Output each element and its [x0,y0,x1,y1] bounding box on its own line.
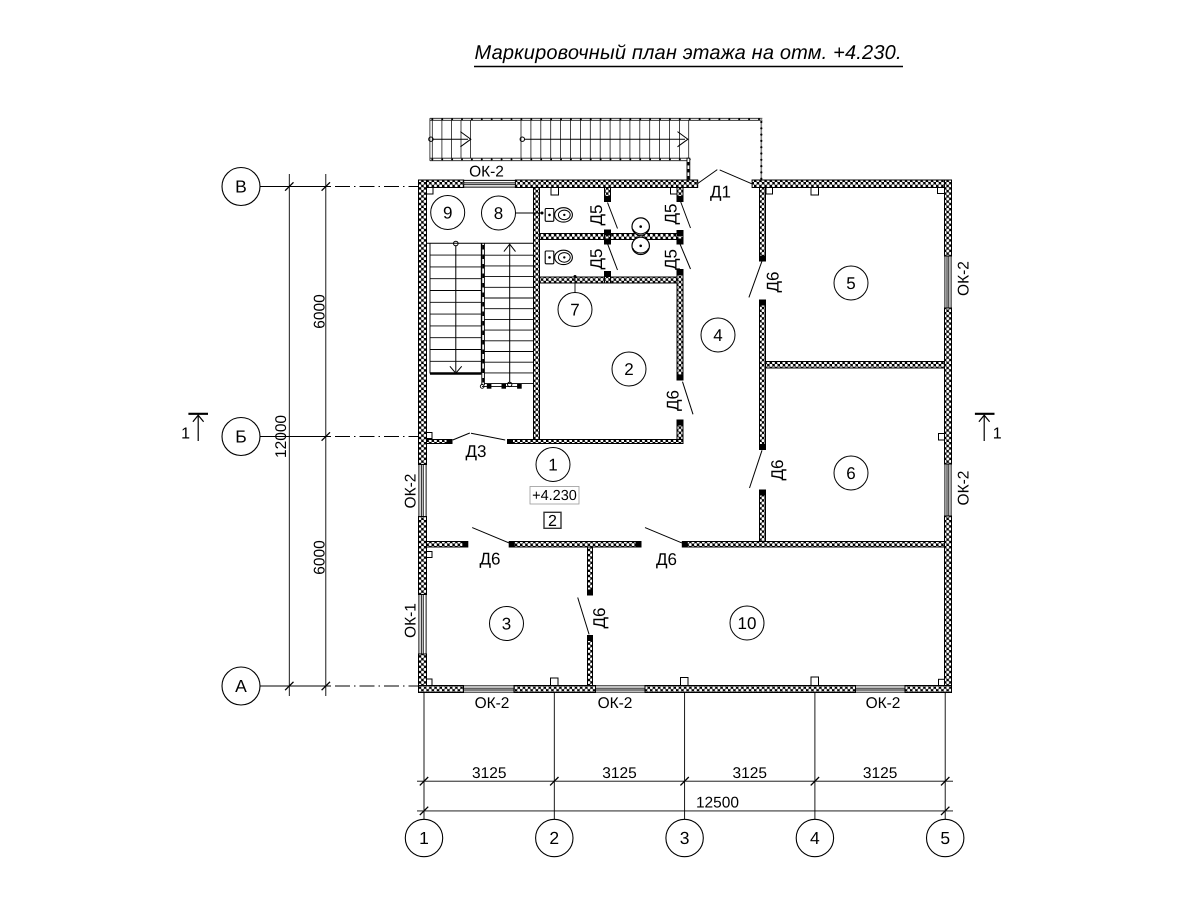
svg-text:ОК-1: ОК-1 [402,603,419,638]
svg-text:Д6: Д6 [764,272,783,293]
svg-text:ОК-2: ОК-2 [469,164,504,181]
svg-text:Д3: Д3 [466,442,487,461]
svg-text:1: 1 [181,426,190,443]
svg-text:В: В [235,177,247,197]
svg-text:ОК-2: ОК-2 [475,695,510,712]
svg-text:2: 2 [624,360,633,379]
svg-text:Д6: Д6 [664,390,683,411]
svg-text:Д6: Д6 [590,608,609,629]
svg-text:7: 7 [570,301,579,320]
svg-text:5: 5 [940,828,950,848]
svg-text:6: 6 [846,464,855,483]
svg-text:3125: 3125 [472,765,506,782]
svg-text:Д5: Д5 [662,249,681,270]
svg-text:3125: 3125 [602,765,636,782]
svg-text:Маркировочный план этажа на от: Маркировочный план этажа на отм. +4.230. [475,42,902,64]
svg-text:Д5: Д5 [662,204,681,225]
svg-text:Д6: Д6 [768,460,787,481]
svg-text:Д6: Д6 [480,550,501,569]
svg-text:3125: 3125 [733,765,767,782]
svg-text:12500: 12500 [696,795,739,812]
svg-text:4: 4 [713,326,722,345]
svg-text:6000: 6000 [312,294,329,329]
svg-text:6000: 6000 [312,540,329,575]
svg-text:ОК-2: ОК-2 [956,261,973,296]
svg-text:2: 2 [549,828,559,848]
svg-text:ОК-2: ОК-2 [956,471,973,506]
svg-text:2: 2 [548,513,557,530]
svg-text:А: А [235,676,247,696]
svg-text:Д1: Д1 [710,183,731,202]
svg-text:1: 1 [419,828,429,848]
svg-text:10: 10 [738,614,757,633]
svg-text:3125: 3125 [863,765,897,782]
svg-text:1: 1 [993,426,1002,443]
svg-text:Б: Б [235,427,246,447]
svg-text:8: 8 [494,204,503,223]
svg-text:Д5: Д5 [587,249,606,270]
svg-text:5: 5 [846,274,855,293]
svg-text:12000: 12000 [273,415,290,458]
svg-text:ОК-2: ОК-2 [402,474,419,509]
svg-text:4: 4 [810,828,820,848]
svg-text:3: 3 [680,828,690,848]
svg-text:ОК-2: ОК-2 [866,695,901,712]
svg-text:9: 9 [443,204,452,223]
svg-text:+4.230: +4.230 [532,488,577,504]
svg-text:Д6: Д6 [656,550,677,569]
svg-text:ОК-2: ОК-2 [598,695,633,712]
svg-text:1: 1 [548,456,557,475]
svg-text:Д5: Д5 [587,205,606,226]
svg-text:3: 3 [502,615,511,634]
